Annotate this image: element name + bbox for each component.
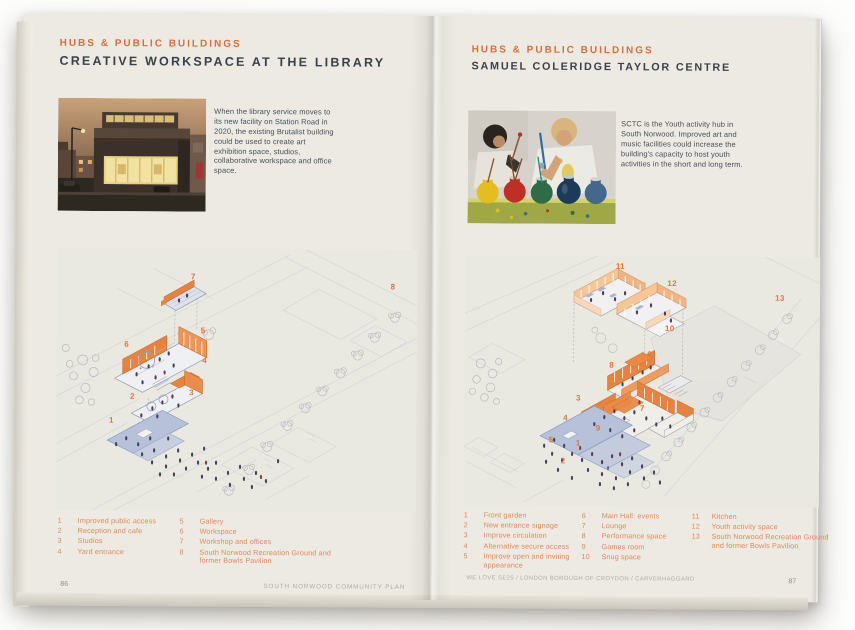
diagram-number-6: 6: [124, 340, 129, 349]
diagram-number-12: 12: [667, 279, 677, 288]
legend-item-label: South Norwood Recreation Ground and form…: [199, 548, 354, 566]
legend-item: 5Improve open and inviting appearance: [463, 552, 581, 570]
legend-item-number: 7: [582, 522, 602, 531]
diagram-number-8: 8: [609, 361, 614, 370]
diagram-number-5: 5: [549, 435, 554, 444]
diagram-number-4: 4: [202, 356, 207, 365]
legend-item-number: 3: [58, 537, 78, 546]
photographed-book-spread: { "left_page": { "eyebrow": "HUBS & PUBL…: [0, 0, 855, 630]
legend-item-number: 4: [464, 542, 484, 551]
legend-item-label: Snug space: [601, 553, 691, 562]
legend-item-number: 4: [57, 547, 77, 556]
legend-item-label: Performance space: [602, 533, 692, 542]
legend-item-number: 12: [692, 523, 712, 532]
legend-item-number: 2: [58, 527, 78, 536]
right-running-footer: WE LOVE SE25 / LONDON BOROUGH OF CROYDON…: [466, 575, 694, 582]
diagram-number-7: 7: [640, 404, 645, 413]
legend-item: 11Kitchen: [692, 513, 842, 523]
left-page-number: 86: [60, 581, 68, 588]
diagram-number-3: 3: [189, 388, 194, 397]
legend-item-label: Lounge: [602, 522, 692, 531]
legend-item-label: Improve open and inviting appearance: [483, 552, 581, 570]
legend-item-label: Front garden: [484, 511, 582, 520]
legend-column: 1Front garden2New entrance signage3Impro…: [463, 511, 581, 572]
legend-item-label: Kitchen: [712, 513, 842, 522]
diagram-number-2: 2: [130, 392, 135, 401]
legend-item-label: Alternative secure access: [484, 542, 582, 551]
legend-item-number: 5: [463, 552, 483, 569]
legend-item-number: 9: [582, 543, 602, 552]
left-axonometric-diagram: 12345678: [56, 248, 418, 512]
legend-item-number: 13: [692, 533, 712, 550]
diagram-number-7: 7: [191, 272, 196, 281]
legend-item: 5Gallery: [180, 518, 355, 528]
legend-item: 7Workshop and offices: [180, 538, 355, 548]
legend-item-label: Youth activity space: [712, 523, 842, 532]
legend-item: 1Improved public access: [58, 517, 180, 526]
legend-item: 10Snug space: [581, 553, 691, 562]
legend-item-number: 5: [180, 518, 200, 527]
legend-item-number: 8: [582, 532, 602, 541]
diagram-number-4: 4: [563, 413, 568, 422]
legend-item-number: 2: [464, 521, 484, 530]
diagram-number-1: 1: [109, 415, 114, 424]
left-page-title: CREATIVE WORKSPACE AT THE LIBRARY: [59, 54, 385, 70]
book-spread: HUBS & PUBLIC BUILDINGS CREATIVE WORKSPA…: [20, 14, 822, 603]
children-painting-photo: [468, 110, 617, 224]
legend-item: 7Lounge: [582, 522, 692, 531]
right-page-number: 87: [788, 578, 796, 585]
legend-item: 3Improve circulation: [464, 532, 582, 541]
legend-item-label: Workshop and offices: [200, 538, 355, 548]
library-photo-illustration: [58, 98, 207, 212]
legend-item-label: Reception and cafe: [78, 527, 180, 536]
legend-item-number: 11: [692, 513, 712, 522]
legend-item-number: 1: [464, 511, 484, 520]
legend-column: 11Kitchen12Youth activity space13South N…: [692, 513, 842, 553]
legend-item-label: Studios: [78, 537, 180, 546]
library-axon-drawing: [56, 248, 418, 512]
legend-item: 1Front garden: [464, 511, 582, 520]
diagram-number-1: 1: [576, 438, 581, 447]
diagram-number-13: 13: [775, 294, 785, 303]
legend-item: 12Youth activity space: [692, 523, 842, 533]
legend-item: 4Alternative secure access: [464, 542, 582, 551]
legend-item-label: Gallery: [200, 518, 355, 528]
diagram-number-8: 8: [391, 282, 396, 291]
right-axonometric-diagram: 12345678910111213: [464, 255, 821, 507]
diagram-number-9: 9: [596, 424, 601, 433]
legend-item: 8South Norwood Recreation Ground and for…: [179, 548, 354, 566]
legend-item-label: South Norwood Recreation Ground and form…: [712, 533, 842, 551]
legend-item-number: 3: [464, 532, 484, 541]
library-dusk-photo: [58, 98, 207, 212]
right-body-paragraph: SCTC is the Youth activity hub in South …: [621, 119, 743, 169]
legend-item-number: 6: [180, 528, 200, 537]
legend-item-number: 1: [58, 517, 78, 526]
diagram-number-6: 6: [647, 350, 652, 359]
legend-item-number: 7: [180, 538, 200, 547]
legend-item-label: New entrance signage: [484, 522, 582, 531]
legend-item: 13South Norwood Recreation Ground and fo…: [692, 533, 842, 551]
legend-item-number: 10: [581, 553, 601, 562]
legend-item-label: Workspace: [200, 528, 355, 538]
legend-item: 6Main Hall: events: [582, 512, 692, 521]
right-diagram-legend: 1Front garden2New entrance signage3Impro…: [463, 511, 841, 573]
diagram-number-5: 5: [201, 326, 206, 335]
legend-item: 3Studios: [58, 537, 180, 546]
legend-column: 6Main Hall: events7Lounge8Performance sp…: [581, 512, 691, 564]
diagram-number-11: 11: [616, 262, 625, 271]
legend-item: 2Reception and cafe: [58, 527, 180, 536]
legend-item: 4Yard entrance: [57, 547, 179, 556]
legend-column: 1Improved public access2Reception and ca…: [57, 517, 179, 559]
legend-item-number: 6: [582, 512, 602, 521]
left-body-paragraph: When the library service moves to its ne…: [214, 107, 336, 177]
painting-photo-illustration: [468, 110, 617, 224]
diagram-number-3: 3: [576, 393, 581, 402]
diagram-number-10: 10: [665, 324, 675, 333]
right-page-title: SAMUEL COLERIDGE TAYLOR CENTRE: [471, 60, 731, 74]
legend-item-label: Improved public access: [78, 517, 180, 526]
legend-item-number: 8: [179, 548, 199, 565]
legend-item-label: Games room: [602, 543, 692, 552]
diagram-number-2: 2: [561, 456, 566, 465]
legend-column: 5Gallery6Workspace7Workshop and offices8…: [179, 518, 354, 569]
legend-item: 9Games room: [582, 543, 692, 552]
sctc-axon-drawing: [464, 255, 821, 507]
left-diagram-legend: 1Improved public access2Reception and ca…: [57, 517, 354, 568]
legend-item-label: Improve circulation: [484, 532, 582, 541]
legend-item: 8Performance space: [582, 532, 692, 541]
legend-item-label: Main Hall: events: [602, 512, 692, 521]
left-section-eyebrow: HUBS & PUBLIC BUILDINGS: [60, 38, 242, 50]
right-section-eyebrow: HUBS & PUBLIC BUILDINGS: [472, 44, 654, 56]
legend-item: 2New entrance signage: [464, 521, 582, 530]
legend-item-label: Yard entrance: [77, 548, 179, 557]
legend-item: 6Workspace: [180, 528, 355, 538]
left-running-footer: SOUTH NORWOOD COMMUNITY PLAN: [170, 582, 405, 590]
